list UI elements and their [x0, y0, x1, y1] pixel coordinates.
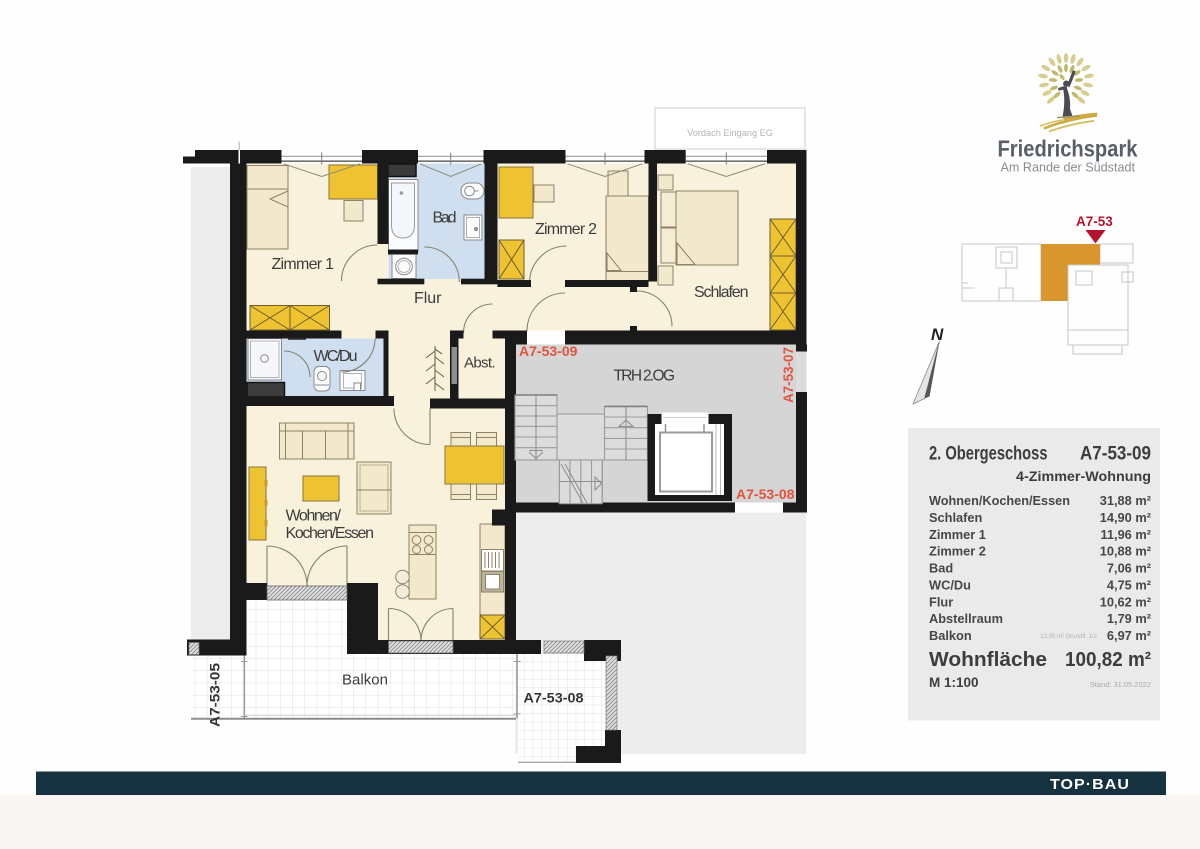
svg-text:Am Rande der Südstadt: Am Rande der Südstadt: [1001, 161, 1136, 175]
svg-text:Wohnen/: Wohnen/: [286, 508, 342, 525]
svg-text:7,06 m²: 7,06 m²: [1107, 561, 1151, 576]
svg-text:Stand: 31.05.2022: Stand: 31.05.2022: [1090, 680, 1151, 689]
svg-text:Vordach Eingang EG: Vordach Eingang EG: [687, 128, 773, 138]
svg-text:4,75 m²: 4,75 m²: [1107, 577, 1151, 592]
svg-text:10,62 m²: 10,62 m²: [1100, 594, 1151, 609]
svg-text:10,88 m²: 10,88 m²: [1100, 544, 1151, 559]
svg-text:Balkon: Balkon: [342, 672, 388, 689]
svg-text:Balkon: Balkon: [929, 628, 972, 643]
svg-text:2. Obergeschoss: 2. Obergeschoss: [929, 444, 1048, 465]
svg-text:A7-53-09: A7-53-09: [519, 343, 578, 359]
svg-text:Abst.: Abst.: [464, 355, 496, 372]
svg-text:A7-53-08: A7-53-08: [524, 690, 584, 706]
svg-text:14,90 m²: 14,90 m²: [1100, 510, 1151, 525]
svg-text:Bad: Bad: [433, 210, 457, 227]
svg-text:Schlafen: Schlafen: [929, 510, 983, 525]
svg-text:Kochen/Essen: Kochen/Essen: [286, 525, 375, 542]
svg-text:13,95 m² Grundfl. 1/2: 13,95 m² Grundfl. 1/2: [1040, 634, 1097, 640]
svg-text:Flur: Flur: [929, 594, 953, 609]
svg-text:N: N: [931, 325, 944, 344]
svg-text:6,97 m²: 6,97 m²: [1107, 628, 1151, 643]
svg-text:A7-53-05: A7-53-05: [207, 663, 223, 727]
svg-text:A7-53-07: A7-53-07: [780, 347, 796, 403]
svg-text:WC/Du: WC/Du: [314, 348, 358, 365]
svg-text:Wohnen/Kochen/Essen: Wohnen/Kochen/Essen: [929, 493, 1070, 508]
svg-text:Wohnfläche: Wohnfläche: [929, 649, 1047, 671]
svg-text:A7-53: A7-53: [1076, 214, 1113, 229]
svg-text:1,79 m²: 1,79 m²: [1107, 611, 1151, 626]
svg-text:WC/Du: WC/Du: [929, 577, 971, 592]
svg-text:Zimmer 1: Zimmer 1: [272, 256, 335, 273]
svg-text:Zimmer 2: Zimmer 2: [535, 221, 597, 238]
svg-text:100,82 m²: 100,82 m²: [1065, 649, 1151, 671]
svg-text:Flur: Flur: [414, 290, 442, 307]
svg-text:A7-53-09: A7-53-09: [1080, 444, 1151, 465]
svg-text:A7-53-08: A7-53-08: [736, 486, 795, 502]
svg-text:Friedrichspark: Friedrichspark: [998, 136, 1139, 162]
svg-text:Zimmer 1: Zimmer 1: [929, 527, 986, 542]
svg-text:Zimmer 2: Zimmer 2: [929, 544, 986, 559]
svg-text:TRH 2.OG: TRH 2.OG: [614, 368, 676, 385]
svg-text:TOP·BAU: TOP·BAU: [1050, 776, 1130, 793]
svg-text:11,96 m²: 11,96 m²: [1100, 527, 1151, 542]
svg-text:31,88 m²: 31,88 m²: [1100, 493, 1151, 508]
svg-text:Schlafen: Schlafen: [694, 284, 749, 301]
svg-text:4-Zimmer-Wohnung: 4-Zimmer-Wohnung: [1016, 468, 1151, 484]
svg-text:Bad: Bad: [929, 561, 953, 576]
svg-text:Abstellraum: Abstellraum: [929, 611, 1003, 626]
svg-text:M 1:100: M 1:100: [929, 675, 979, 690]
